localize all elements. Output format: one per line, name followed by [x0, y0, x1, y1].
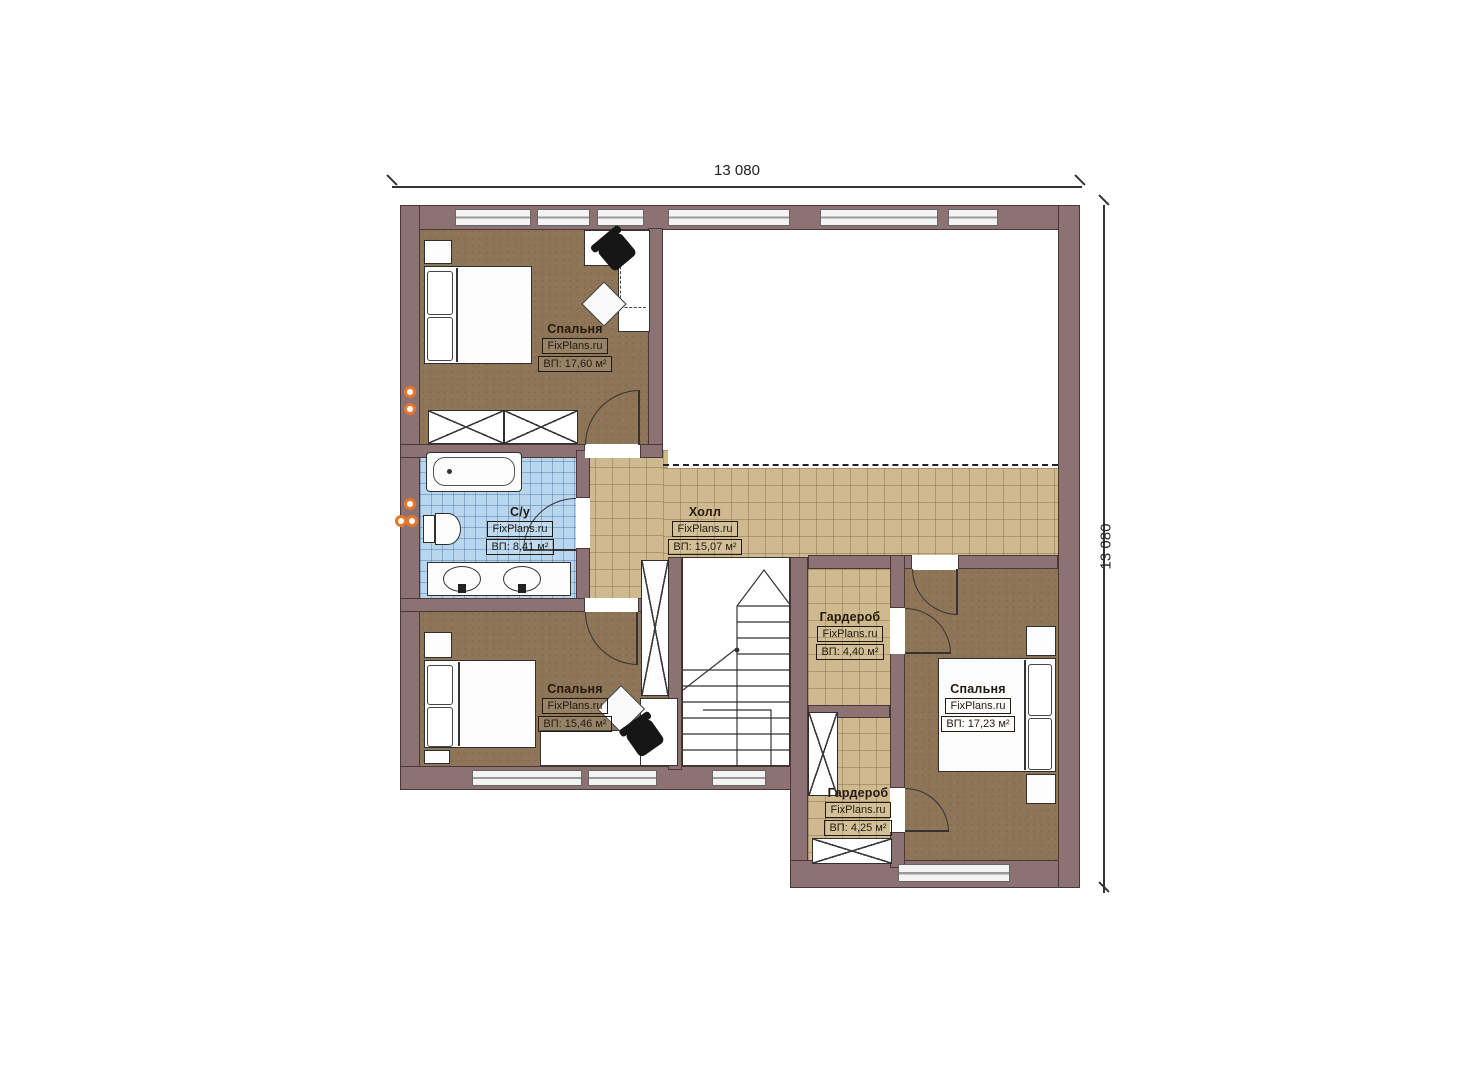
room-name: Спальня	[527, 682, 623, 696]
pillow	[427, 707, 453, 747]
pillow	[1028, 718, 1052, 770]
toilet-tank	[423, 515, 435, 543]
riser-dot	[404, 386, 416, 398]
window	[712, 770, 766, 786]
window	[597, 209, 644, 226]
room-area: ВП: 17,60 м²	[538, 356, 611, 372]
wall-bedroom1-right	[648, 228, 663, 458]
wall-wardrobe-bedroom	[890, 555, 905, 608]
blanket-line	[458, 662, 460, 746]
room-name: Спальня	[527, 322, 623, 336]
closet-hatch	[504, 410, 578, 444]
door-leaf	[638, 390, 640, 445]
room-brand: FixPlans.ru	[945, 698, 1010, 714]
staircase	[682, 557, 790, 766]
nightstand	[424, 750, 450, 764]
room-name: Холл	[657, 505, 753, 519]
door-bathroom	[576, 498, 590, 548]
blanket-line	[456, 268, 458, 362]
door-bedroom-right	[912, 555, 958, 570]
closet-hatch	[812, 838, 892, 864]
room-label-bedroom-top-left: Спальня FixPlans.ru ВП: 17,60 м²	[527, 322, 623, 372]
room-brand: FixPlans.ru	[542, 338, 607, 354]
pillow	[427, 317, 453, 361]
wall-exterior-right	[1058, 205, 1080, 888]
room-label-hall: Холл FixPlans.ru ВП: 15,07 м²	[657, 505, 753, 555]
wall-wardrobe-bedroom	[890, 652, 905, 788]
bathtub	[426, 452, 522, 492]
riser-dot	[404, 498, 416, 510]
wall-bedroom1-bottom	[640, 444, 663, 458]
window	[588, 770, 657, 786]
window	[898, 864, 1010, 882]
room-label-bedroom-bottom-left: Спальня FixPlans.ru ВП: 15,46 м²	[527, 682, 623, 732]
door-leaf	[905, 830, 949, 832]
riser-dot	[404, 403, 416, 415]
toilet-bowl	[435, 513, 461, 545]
room-label-bathroom: С/у FixPlans.ru ВП: 8,41 м²	[472, 505, 568, 555]
wall-bathroom-bottom	[400, 598, 585, 612]
room-area: ВП: 4,40 м²	[816, 644, 883, 660]
faucet	[458, 584, 466, 593]
pillow	[1028, 664, 1052, 716]
room-label-bedroom-right: Спальня FixPlans.ru ВП: 17,23 м²	[928, 682, 1028, 732]
door-leaf	[636, 612, 638, 665]
dimension-right-label: 13 080	[1098, 521, 1115, 573]
wall-hall-south	[958, 555, 1058, 569]
dimension-tick	[1098, 194, 1109, 205]
window	[948, 209, 998, 226]
pillow	[427, 271, 453, 315]
room-area: ВП: 4,25 м²	[824, 820, 891, 836]
room-label-wardrobe-bottom: Гардероб FixPlans.ru ВП: 4,25 м²	[810, 786, 906, 836]
window	[668, 209, 790, 226]
room-brand: FixPlans.ru	[672, 521, 737, 537]
wall-bathroom-right	[576, 548, 590, 600]
window	[820, 209, 938, 226]
dimension-top-label: 13 080	[392, 162, 1082, 179]
faucet	[518, 584, 526, 593]
window	[455, 209, 531, 226]
riser-dot	[406, 515, 418, 527]
room-brand: FixPlans.ru	[825, 802, 890, 818]
room-area: ВП: 17,23 м²	[941, 716, 1014, 732]
room-name: С/у	[472, 505, 568, 519]
pillow	[427, 665, 453, 705]
bathtub-inner	[433, 457, 515, 486]
door-leaf	[905, 652, 951, 654]
window	[537, 209, 590, 226]
nightstand	[424, 632, 452, 658]
dimension-top-line	[392, 186, 1082, 188]
wall-stair-west	[790, 557, 808, 868]
bathtub-drain	[447, 469, 452, 474]
room-name: Спальня	[928, 682, 1028, 696]
wall-wardrobe-bedroom	[890, 832, 905, 868]
door-leaf	[956, 569, 958, 615]
room-name: Гардероб	[802, 610, 898, 624]
room-name: Гардероб	[810, 786, 906, 800]
stair-treads	[683, 558, 791, 767]
nightstand	[424, 240, 452, 264]
room-area: ВП: 15,46 м²	[538, 716, 611, 732]
room-label-wardrobe-top: Гардероб FixPlans.ru ВП: 4,40 м²	[802, 610, 898, 660]
room-brand: FixPlans.ru	[487, 521, 552, 537]
floor-plan: Спальня FixPlans.ru ВП: 17,60 м² С/у Fix…	[0, 0, 1473, 1080]
room-brand: FixPlans.ru	[817, 626, 882, 642]
room-area: ВП: 15,07 м²	[668, 539, 741, 555]
door-bedroom-bottom-left	[585, 598, 638, 612]
door-bedroom-top-left	[585, 444, 640, 458]
closet-hatch	[641, 560, 669, 696]
closet-hatch	[428, 410, 504, 444]
room-brand: FixPlans.ru	[542, 698, 607, 714]
nightstand	[1026, 774, 1056, 804]
window	[472, 770, 582, 786]
void-opening-dashed-line	[663, 464, 1058, 466]
closet-hatch	[808, 712, 838, 796]
nightstand	[1026, 626, 1056, 656]
room-area: ВП: 8,41 м²	[486, 539, 553, 555]
